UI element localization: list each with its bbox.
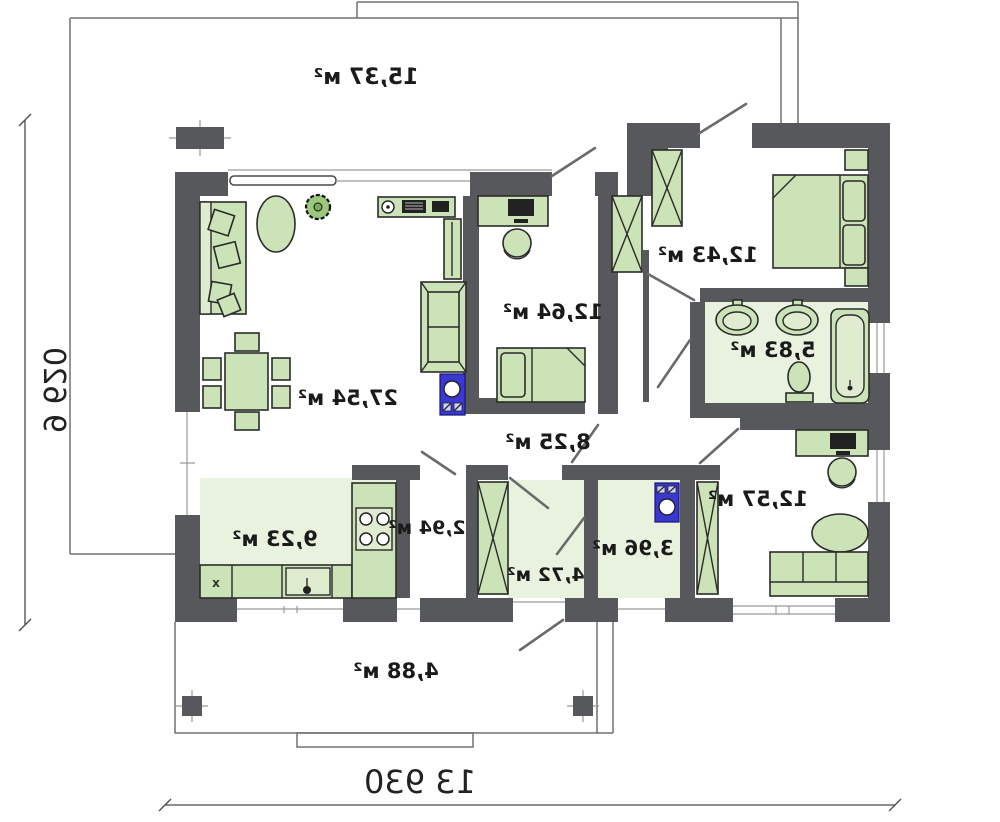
bedroom-right-furniture — [770, 430, 868, 596]
desk-with-pc — [796, 430, 868, 456]
dimension-depth: 9 620 — [19, 114, 71, 631]
wardrobe-corridor — [612, 196, 642, 272]
double-bed — [773, 175, 868, 268]
room-label-entrance-hall: 4,72 м² — [507, 564, 584, 586]
bathroom-window — [868, 323, 890, 373]
bathtub — [831, 309, 869, 403]
desk-chair — [828, 458, 856, 488]
terrace-bench — [169, 120, 231, 156]
porch-post — [176, 690, 208, 722]
room-label-bedroom-right: 12,57 м² — [708, 487, 808, 511]
kitchen-counter-right — [352, 483, 396, 598]
room-label-corridor: 8,25 м² — [505, 430, 591, 454]
floor-plan-canvas: x 9 620 — [0, 0, 1000, 822]
computer-icon — [508, 199, 534, 216]
bedroom-right-window — [733, 598, 835, 622]
kitchen-window — [237, 598, 343, 622]
desk-with-pc — [478, 196, 548, 226]
porch-step — [297, 733, 473, 747]
depth-dimension-label: 9 620 — [36, 347, 71, 433]
kitchen-counter-bottom: x — [200, 565, 352, 598]
coffee-table — [812, 514, 868, 552]
living-terrace-door — [552, 148, 595, 176]
bedroom-right-door — [700, 429, 738, 463]
nightstand — [845, 268, 868, 286]
porch-outline — [175, 622, 613, 747]
floor-plan-drawing: x 9 620 — [0, 0, 1000, 822]
room-label-laundry: 3,96 м² — [592, 536, 673, 560]
room-label-living: 27,54 м² — [298, 386, 398, 410]
bedroom-right-side-window — [868, 450, 890, 502]
hall-terrace-door — [698, 104, 746, 134]
room-label-terrace: 15,37 м² — [314, 65, 419, 90]
fireplace — [421, 282, 466, 372]
wardrobe-entrance-hall — [478, 482, 508, 594]
laundry-window — [618, 598, 665, 622]
single-bed — [497, 348, 585, 402]
bathroom-door — [658, 340, 690, 387]
master-bedroom-furniture — [773, 150, 868, 286]
room-label-bedroom-master: 12,43 м² — [658, 243, 758, 267]
plant — [306, 195, 330, 219]
bedroom-middle-furniture — [478, 196, 585, 402]
nightstand — [845, 150, 868, 170]
room-label-bedroom-middle: 12,64 м² — [503, 300, 603, 324]
width-dimension-label: 13 930 — [364, 763, 476, 801]
wardrobe-master-bedroom — [652, 150, 682, 226]
cooktop — [356, 508, 392, 550]
tv-cabinet — [378, 197, 455, 217]
room-label-kitchen: 9,23 м² — [232, 527, 318, 551]
porch-post — [567, 690, 599, 722]
dining-table-set — [203, 333, 290, 430]
dimension-width: 13 930 — [159, 763, 901, 811]
room-label-porch: 4,88 м² — [353, 659, 439, 683]
master-bedroom-door — [648, 274, 694, 300]
entrance-door — [520, 620, 563, 650]
tall-cabinet — [444, 219, 461, 279]
sofa — [200, 202, 246, 317]
sofa-small — [770, 552, 868, 596]
room-label-bathroom: 5,83 м² — [730, 338, 816, 362]
cabinet-mark: x — [212, 576, 220, 590]
computer-icon — [830, 433, 856, 449]
rug — [257, 196, 295, 252]
desk-chair — [503, 229, 531, 259]
room-label-pantry: 2,94 м² — [388, 517, 465, 539]
boiler-appliance — [440, 374, 465, 415]
washing-machine — [655, 483, 679, 522]
pantry-door — [422, 452, 455, 474]
pantry-window — [397, 598, 420, 622]
